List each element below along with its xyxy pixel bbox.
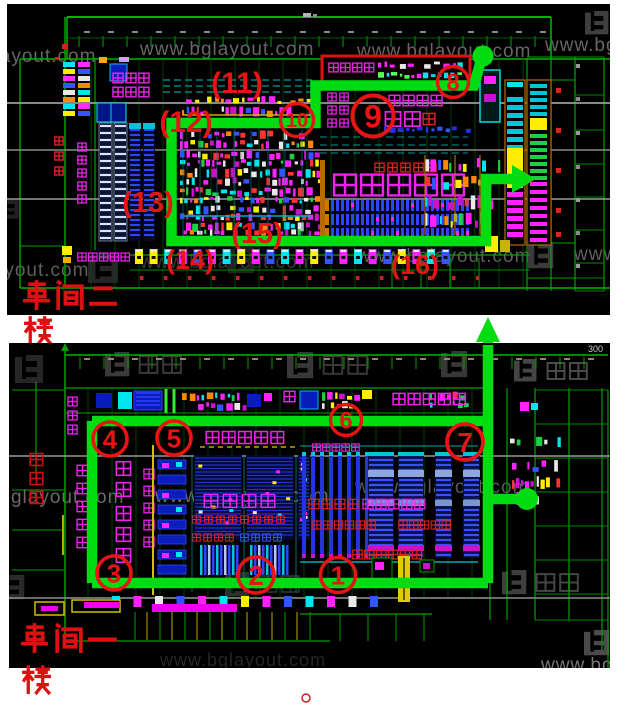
svg-text:3: 3 (107, 558, 121, 588)
svg-text:www.bglayout.com: www.bglayout.com (159, 650, 326, 670)
svg-text:www.bglayout.com: www.bglayout.com (0, 260, 89, 281)
svg-text:(12): (12) (159, 106, 212, 139)
svg-text:5: 5 (167, 423, 181, 453)
svg-text:7: 7 (457, 427, 473, 458)
svg-text:www.bglayout.com: www.bglayout.com (139, 39, 314, 60)
svg-text:6: 6 (339, 408, 352, 435)
svg-text:(16): (16) (391, 250, 439, 280)
svg-text:2: 2 (248, 560, 264, 591)
svg-text:1: 1 (331, 560, 345, 590)
svg-text:300: 300 (588, 344, 603, 354)
svg-text:www.bg: www.bg (540, 655, 614, 676)
svg-text:(15): (15) (231, 218, 283, 250)
svg-text:(14): (14) (166, 245, 214, 275)
svg-text:www.bglayout.com: www.bglayout.com (573, 244, 621, 265)
svg-text:(11): (11) (211, 67, 263, 100)
svg-text:www.bglayout.com: www.bglayout.com (544, 35, 621, 56)
svg-text:9: 9 (364, 99, 382, 135)
svg-text:8: 8 (446, 70, 459, 97)
svg-text:10: 10 (286, 110, 308, 132)
svg-text:4: 4 (103, 424, 118, 454)
svg-text:(13): (13) (122, 187, 174, 219)
